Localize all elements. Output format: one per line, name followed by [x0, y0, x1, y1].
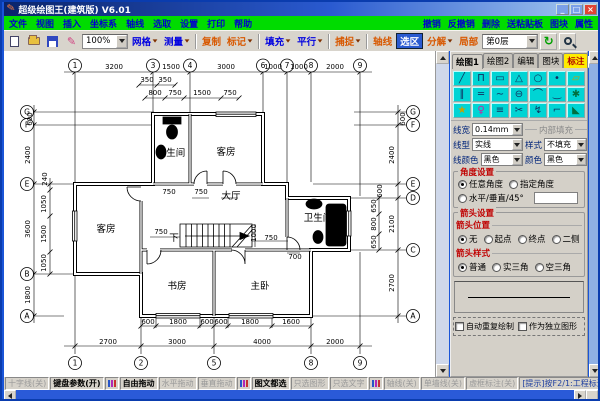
toolbar-button-选区[interactable]: 选区	[396, 33, 423, 49]
maximize-button[interactable]: □	[570, 4, 583, 15]
dim-label: 7	[285, 61, 290, 70]
line-width-value: 0.14mm	[475, 125, 508, 134]
scroll-left-icon[interactable]	[4, 390, 16, 401]
dim-label: 1800	[241, 318, 259, 326]
arrow-pos-无-radio[interactable]: 无	[458, 233, 478, 245]
line-tool-icon[interactable]: ╱	[453, 71, 471, 86]
toolbar-button-复制[interactable]: 复制	[200, 33, 223, 49]
scroll-up-icon[interactable]	[436, 51, 449, 64]
menu-item-7[interactable]: 打印	[207, 17, 225, 30]
status-item-单墙线(关)[interactable]: 单墙线(关)	[421, 377, 465, 390]
scrollbar-track[interactable]	[16, 390, 574, 401]
status-item-虚框标注(关)[interactable]: 虚框标注(关)	[466, 377, 518, 390]
break-line-tool-icon[interactable]: ↯	[529, 103, 547, 118]
toolbar-button-分解[interactable]: 分解	[425, 33, 455, 49]
menu-item-right-5[interactable]: 属性	[575, 17, 593, 30]
toolbar-button-平行[interactable]: 平行	[295, 33, 325, 49]
new-file-button[interactable]	[6, 33, 23, 50]
dim-label: E	[25, 180, 30, 189]
minimize-button[interactable]: _	[556, 4, 569, 15]
status-item-自由拖动[interactable]: 自由拖动	[120, 377, 158, 390]
status-item-水平拖动[interactable]: 水平拖动	[159, 377, 197, 390]
arrow-settings-title: 箭头设置	[458, 207, 496, 219]
dim-label: 1050	[40, 195, 48, 213]
room-label: 卫生间	[304, 212, 333, 224]
toolbar-button-填充[interactable]: 填充	[263, 33, 293, 49]
checkbox-作为独立图形[interactable]: 作为独立图形	[518, 321, 577, 332]
dim-label: 800	[148, 89, 161, 97]
dim-label: C	[410, 246, 415, 255]
fillet-tool-icon[interactable]: ⌐	[548, 103, 566, 118]
status-item-图文都选[interactable]: 图文都选	[252, 377, 290, 390]
zoom-dropdown-icon[interactable]	[116, 35, 127, 48]
dim-label: 1	[73, 359, 78, 368]
eraser-tool-icon[interactable]: ▱	[567, 71, 585, 86]
dim-label: 600	[26, 112, 34, 125]
plan-texts: 1346789320015003000100010002000350350800…	[21, 59, 420, 370]
menu-item-3[interactable]: 坐标系	[90, 17, 117, 30]
dim-label: 2400	[388, 146, 396, 164]
menu-item-right-1[interactable]: 反撤销	[448, 17, 475, 30]
status-item-只选文字[interactable]: 只选文字	[330, 377, 368, 390]
dim-label: 600	[214, 318, 227, 326]
fill-style-label: 样式	[525, 139, 542, 151]
dim-label: 240	[41, 172, 49, 185]
rotate-icon: ↻	[544, 34, 554, 48]
dim-label: 1500	[193, 89, 211, 97]
dim-label: F	[411, 121, 415, 130]
room-label: 卫生间	[157, 147, 186, 159]
arrow-pos-二侧-radio[interactable]: 二侧	[552, 233, 580, 245]
menu-item-right-2[interactable]: 删除	[482, 17, 500, 30]
polyline-tool-icon[interactable]: Π	[472, 71, 490, 86]
dim-label: 3	[151, 61, 156, 70]
open-folder-icon	[28, 37, 40, 45]
dim-label: 4000	[253, 338, 271, 346]
dim-label: 2100	[388, 215, 396, 233]
dim-label: 600	[141, 318, 154, 326]
fill-color-value: 黑色	[547, 154, 563, 165]
dim-label: 600	[376, 184, 384, 197]
status-item-键盘参数(开)[interactable]: 键盘参数(开)	[50, 377, 103, 390]
dim-label: 350	[140, 76, 153, 84]
drawing-panel: 绘图1绘图2编辑图块标注× ╱Π▭△○•▱∥═∼⊖⌒‿✱★♀≡✂↯⌐◣ 线宽 0…	[450, 51, 588, 377]
dim-label: 700	[288, 253, 301, 261]
dim-label: 750	[223, 89, 236, 97]
fill-style-combobox[interactable]: 不填充	[544, 138, 587, 151]
tab-绘图1[interactable]: 绘图1	[452, 54, 483, 69]
app-window: ✎ 超级绘图王(建筑版) V6.01 _ □ × 文件视图插入坐标系轴线选取设置…	[0, 0, 600, 401]
circle-tool-icon[interactable]: ○	[529, 71, 547, 86]
status-item-垂直拖动[interactable]: 垂直拖动	[198, 377, 236, 390]
dim-label: 1000	[264, 63, 282, 71]
tab-图块[interactable]: 图块	[538, 53, 563, 68]
scissors-tool-icon[interactable]: ✂	[510, 103, 528, 118]
dim-label: 350	[158, 76, 171, 84]
menu-item-right-0[interactable]: 撤销	[423, 17, 441, 30]
dim-label: 8	[309, 61, 314, 70]
dim-label: 3000	[168, 338, 186, 346]
layer-combobox[interactable]: 第0层	[482, 34, 538, 49]
zoom-value: 100%	[86, 36, 110, 46]
dim-label: 3200	[105, 63, 123, 71]
status-item-十字线(关)[interactable]: 十字线(关)	[5, 377, 49, 390]
checkbox-自动重复绘制[interactable]: 自动重复绘制	[455, 321, 514, 332]
dim-label: 800	[370, 217, 378, 230]
line-type-label: 线型	[453, 139, 470, 151]
arrow-style-实三角-radio[interactable]: 实三角	[492, 261, 529, 273]
dim-label: A	[410, 312, 416, 321]
arrow-style-空三角-radio[interactable]: 空三角	[535, 261, 572, 273]
line-width-label: 线宽	[453, 124, 470, 136]
dim-label: 650	[370, 199, 378, 212]
toolbar-separator	[258, 34, 260, 49]
pattern-brush-tool-icon[interactable]: ✱	[567, 87, 585, 102]
dim-label: 5	[212, 359, 217, 368]
statusbar-separator	[237, 377, 251, 390]
dim-label: 1000	[290, 63, 308, 71]
status-item-只选图形[interactable]: 只选图形	[291, 377, 329, 390]
dim-label: A	[24, 312, 30, 321]
stairs-tool-icon[interactable]: ≡	[491, 103, 509, 118]
zoom-combobox[interactable]: 100%	[82, 34, 128, 49]
fill-bucket-tool-icon[interactable]: ◣	[567, 103, 585, 118]
toolbar-button-标记[interactable]: 标记	[225, 33, 255, 49]
angle-settings-group: 角度设置 任意角度 指定角度 水平/垂直/45°	[453, 171, 585, 208]
floor-plan: 1346789320015003000100010002000350350800…	[4, 51, 436, 377]
dim-label: 600	[399, 112, 407, 125]
panel-footer: 自动重复绘制作为独立图形	[453, 317, 585, 336]
room-label: 主卧	[250, 280, 270, 292]
brush-icon: ✎	[67, 35, 76, 48]
save-button[interactable]	[44, 33, 61, 50]
menu-item-right-4[interactable]: 图块	[550, 17, 568, 30]
dim-label: 2	[139, 359, 144, 368]
arrow-pos-终点-radio[interactable]: 终点	[518, 233, 546, 245]
dim-label: 2000	[326, 63, 344, 71]
dim-label: 4	[188, 61, 193, 70]
menu-item-6[interactable]: 设置	[180, 17, 198, 30]
dim-label: G	[410, 108, 416, 117]
ellipse-tool-icon[interactable]: ⊖	[510, 87, 528, 102]
room-label: 客房	[96, 223, 115, 235]
toolbar-button-测量[interactable]: 测量	[162, 33, 192, 49]
scroll-down-icon[interactable]	[589, 364, 600, 377]
toolbar-separator	[328, 34, 330, 49]
app-icon: ✎	[6, 3, 16, 14]
scroll-down-icon[interactable]	[436, 364, 449, 377]
dim-label: 1800	[24, 286, 32, 304]
dim-label: 1500	[162, 63, 180, 71]
dim-label: 1500	[40, 225, 48, 243]
close-button[interactable]: ×	[584, 4, 597, 15]
menu-item-4[interactable]: 轴线	[126, 17, 144, 30]
print-preview-button[interactable]	[559, 33, 576, 50]
line-color-combobox[interactable]: 黑色	[481, 153, 523, 166]
tab-绘图2[interactable]: 绘图2	[483, 53, 513, 68]
toolbar-separator	[366, 34, 368, 49]
angle-fixed-radio[interactable]: 指定角度	[509, 178, 554, 190]
line-color-value: 黑色	[484, 154, 500, 165]
scroll-up-icon[interactable]	[589, 51, 600, 64]
arrow-style-普通-radio[interactable]: 普通	[458, 261, 486, 273]
window-title: 超级绘图王(建筑版) V6.01	[18, 3, 131, 16]
stairs	[180, 224, 252, 247]
arc-tool-icon[interactable]: ⌒	[529, 87, 547, 102]
arrow-settings-group: 箭头设置 箭头位置 无起点终点二侧 箭头样式 普通实三角空三角	[453, 212, 585, 277]
dim-label: 9	[358, 359, 363, 368]
room-label: 下	[169, 233, 179, 244]
room-label: 书房	[167, 280, 186, 292]
dim-label: 650	[370, 235, 378, 248]
dim-label: 1800	[169, 318, 187, 326]
dim-label: 9	[358, 61, 363, 70]
dim-label: 8	[309, 359, 314, 368]
arc-segment-tool-icon[interactable]: ‿	[548, 87, 566, 102]
draw-mode-button[interactable]: ✎	[63, 33, 80, 50]
scroll-corner	[586, 390, 598, 401]
menu-item-1[interactable]: 视图	[36, 17, 54, 30]
dim-label: 600	[200, 318, 213, 326]
new-file-icon	[10, 36, 19, 47]
room-label: 大厅	[221, 190, 241, 202]
layer-value: 第0层	[486, 35, 508, 47]
polygon-tool-icon[interactable]: △	[510, 71, 528, 86]
status-item-[提示]按F2/1:工程标注[interactable]: [提示]按F2/1:工程标注	[519, 377, 598, 390]
statusbar-separator	[105, 377, 119, 390]
save-floppy-icon	[47, 36, 58, 47]
line-type-value: 实线	[475, 139, 491, 150]
panel-tabs: 绘图1绘图2编辑图块标注×	[451, 52, 587, 68]
dim-label: 750	[264, 234, 277, 242]
dim-label: 2700	[99, 338, 117, 346]
menu-item-0[interactable]: 文件	[9, 17, 27, 30]
statusbar-separator	[369, 377, 383, 390]
dim-label: 1600	[282, 318, 300, 326]
dim-label: B	[24, 270, 29, 279]
status-item-轴线(关)[interactable]: 轴线(关)	[384, 377, 420, 390]
star-tool-icon[interactable]: ★	[453, 103, 471, 118]
arrow-pos-起点-radio[interactable]: 起点	[484, 233, 512, 245]
toolbar-button-网格[interactable]: 网格	[130, 33, 160, 49]
title-bar[interactable]: ✎ 超级绘图王(建筑版) V6.01 _ □ ×	[4, 2, 598, 16]
tab-编辑[interactable]: 编辑	[513, 53, 538, 68]
dim-label: 750	[154, 228, 167, 236]
parallel-lines-tool-icon[interactable]: ∥	[453, 87, 471, 102]
menu-item-right-3[interactable]: 送粘贴板	[507, 17, 543, 30]
menu-item-8[interactable]: 帮助	[234, 17, 252, 30]
window-vertical-scrollbar[interactable]	[589, 51, 600, 377]
rotate-button[interactable]: ↻	[540, 33, 557, 50]
horizontal-scrollbar[interactable]	[4, 390, 598, 401]
open-file-button[interactable]	[25, 33, 42, 50]
menu-item-5[interactable]: 选取	[153, 17, 171, 30]
toolbar-button-局部[interactable]: 局部	[457, 33, 480, 49]
inner-fill-group-label: 内部填充	[524, 122, 588, 137]
arrow-style-label: 箭头样式	[456, 247, 582, 259]
tab-标注[interactable]: 标注	[563, 53, 588, 68]
dim-label: 2000	[326, 338, 344, 346]
menu-item-2[interactable]: 插入	[63, 17, 81, 30]
dim-label: D	[410, 194, 416, 203]
curve-tool-icon[interactable]: ∼	[491, 87, 509, 102]
line-style-preview	[454, 281, 584, 313]
angle-any-radio[interactable]: 任意角度	[458, 178, 503, 190]
toolbar-button-轴线[interactable]: 轴线	[371, 33, 394, 49]
figure-tool-icon[interactable]: ♀	[472, 103, 490, 118]
dim-label: 2700	[388, 274, 396, 292]
angle-hv45-radio[interactable]: 水平/垂直/45°	[458, 192, 524, 204]
dim-label: 2400	[24, 146, 32, 164]
canvas-vertical-scrollbar[interactable]	[436, 51, 449, 377]
line-color-label: 线颜色	[453, 154, 479, 166]
dim-label: 3000	[217, 63, 235, 71]
arrow-position-label: 箭头位置	[456, 219, 582, 231]
dim-label: 1	[73, 61, 78, 70]
dim-label: 750	[162, 188, 175, 196]
point-tool-icon[interactable]: •	[548, 71, 566, 86]
drawing-canvas[interactable]: 1346789320015003000100010002000350350800…	[4, 51, 436, 377]
dim-label: 1050	[40, 254, 48, 272]
layer-dropdown-icon[interactable]	[526, 35, 537, 48]
dim-label: 750	[168, 89, 181, 97]
menu-bar: 文件视图插入坐标系轴线选取设置打印帮助 撤销反撤销删除送粘贴板图块属性	[4, 16, 598, 30]
tool-grid: ╱Π▭△○•▱∥═∼⊖⌒‿✱★♀≡✂↯⌐◣	[451, 68, 587, 121]
line-type-combobox[interactable]: 实线	[472, 138, 523, 151]
room-label: 客房	[216, 146, 235, 158]
scroll-right-icon[interactable]	[574, 390, 586, 401]
dim-label: 750	[194, 188, 207, 196]
fill-color-label: 颜色	[525, 154, 542, 166]
toolbar-separator	[195, 34, 197, 49]
line-width-combobox[interactable]: 0.14mm	[472, 123, 523, 136]
toolbar: ✎ 100% 网格测量复制标记填充平行捕捉轴线选区分解局部 第0层 ↻	[4, 30, 598, 51]
toolbar-button-捕捉[interactable]: 捕捉	[333, 33, 363, 49]
construction-line-tool-icon[interactable]: ═	[472, 87, 490, 102]
angle-settings-title: 角度设置	[458, 166, 496, 178]
rectangle-tool-icon[interactable]: ▭	[491, 71, 509, 86]
dim-label: 1000	[250, 224, 258, 242]
magnifier-icon	[564, 37, 572, 45]
dim-label: 3600	[24, 220, 32, 238]
dim-label: E	[411, 180, 416, 189]
angle-value-input[interactable]	[534, 192, 578, 204]
status-bar: 十字线(关)键盘参数(开)自由拖动水平拖动垂直拖动图文都选只选图形只选文字轴线(…	[4, 377, 598, 390]
fill-style-value: 不填充	[547, 139, 571, 150]
fill-color-combobox[interactable]: 黑色	[544, 153, 587, 166]
